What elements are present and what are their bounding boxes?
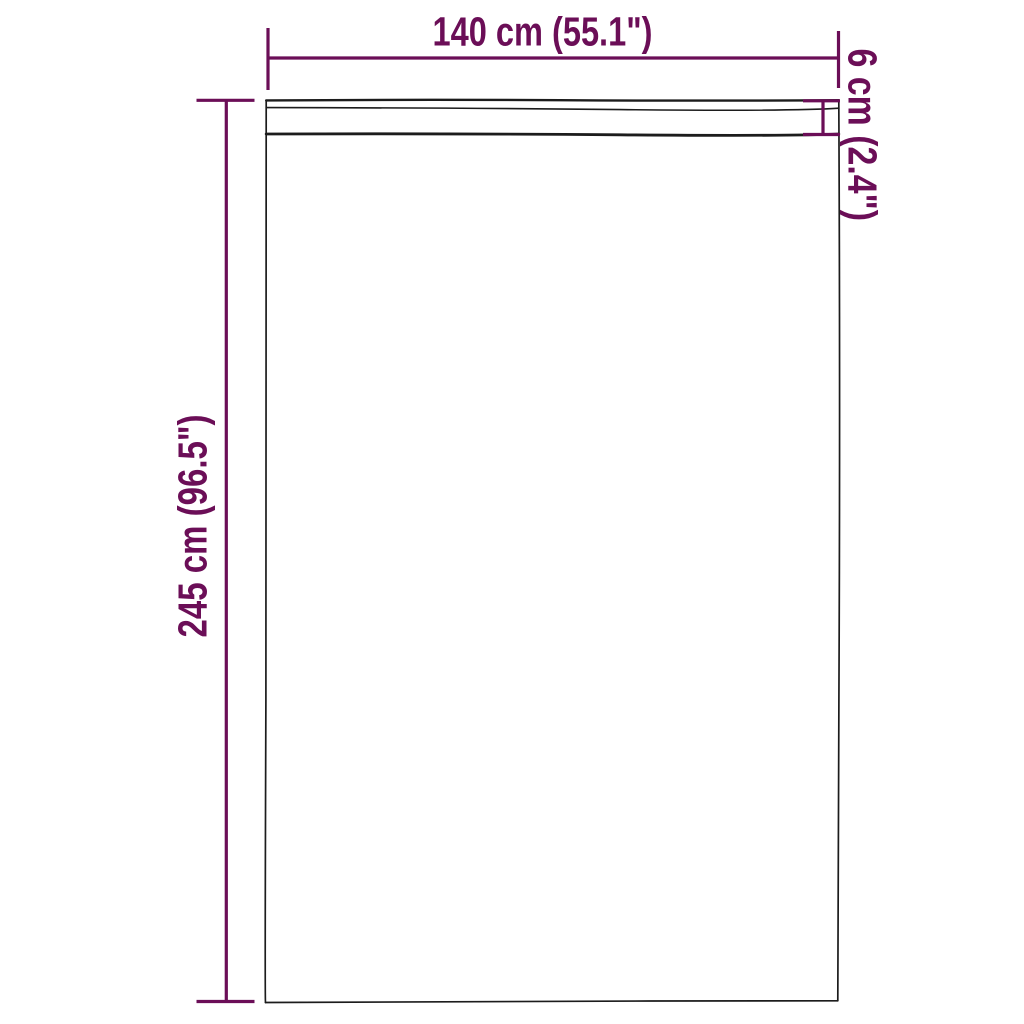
svg-text:245 cm (96.5"): 245 cm (96.5") <box>170 415 216 638</box>
svg-text:6 cm (2.4"): 6 cm (2.4") <box>840 49 886 222</box>
svg-text:140 cm (55.1"): 140 cm (55.1") <box>433 9 653 55</box>
